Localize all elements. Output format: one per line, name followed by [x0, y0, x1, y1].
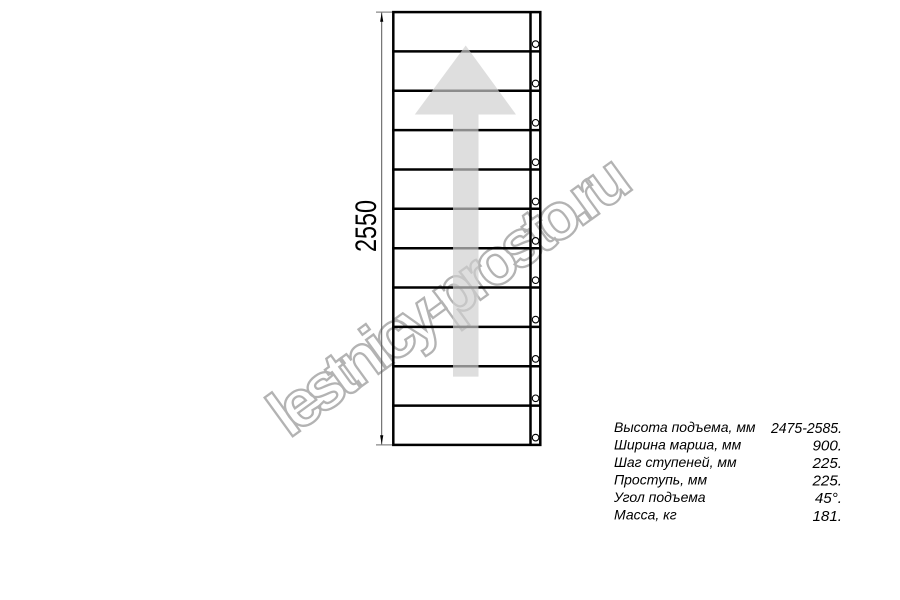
- svg-text:lestnicy-prosto.ru: lestnicy-prosto.ru: [254, 141, 640, 450]
- svg-text:Ширина марша, мм: Ширина марша, мм: [614, 436, 742, 452]
- svg-text:Проступь, мм: Проступь, мм: [614, 472, 708, 488]
- svg-text:Шаг ступеней, мм: Шаг ступеней, мм: [614, 454, 737, 470]
- svg-text:225.: 225.: [811, 473, 842, 490]
- svg-text:2475-2585.: 2475-2585.: [770, 420, 842, 437]
- svg-text:Угол подъема: Угол подъема: [613, 489, 706, 505]
- svg-text:900.: 900.: [812, 438, 842, 455]
- svg-text:181.: 181.: [812, 508, 842, 525]
- svg-text:Высота подъема, мм: Высота подъема, мм: [614, 419, 756, 435]
- svg-text:2550: 2550: [350, 200, 383, 252]
- svg-text:45°.: 45°.: [815, 490, 842, 507]
- svg-text:Масса, кг: Масса, кг: [614, 507, 677, 523]
- svg-text:225.: 225.: [811, 455, 842, 472]
